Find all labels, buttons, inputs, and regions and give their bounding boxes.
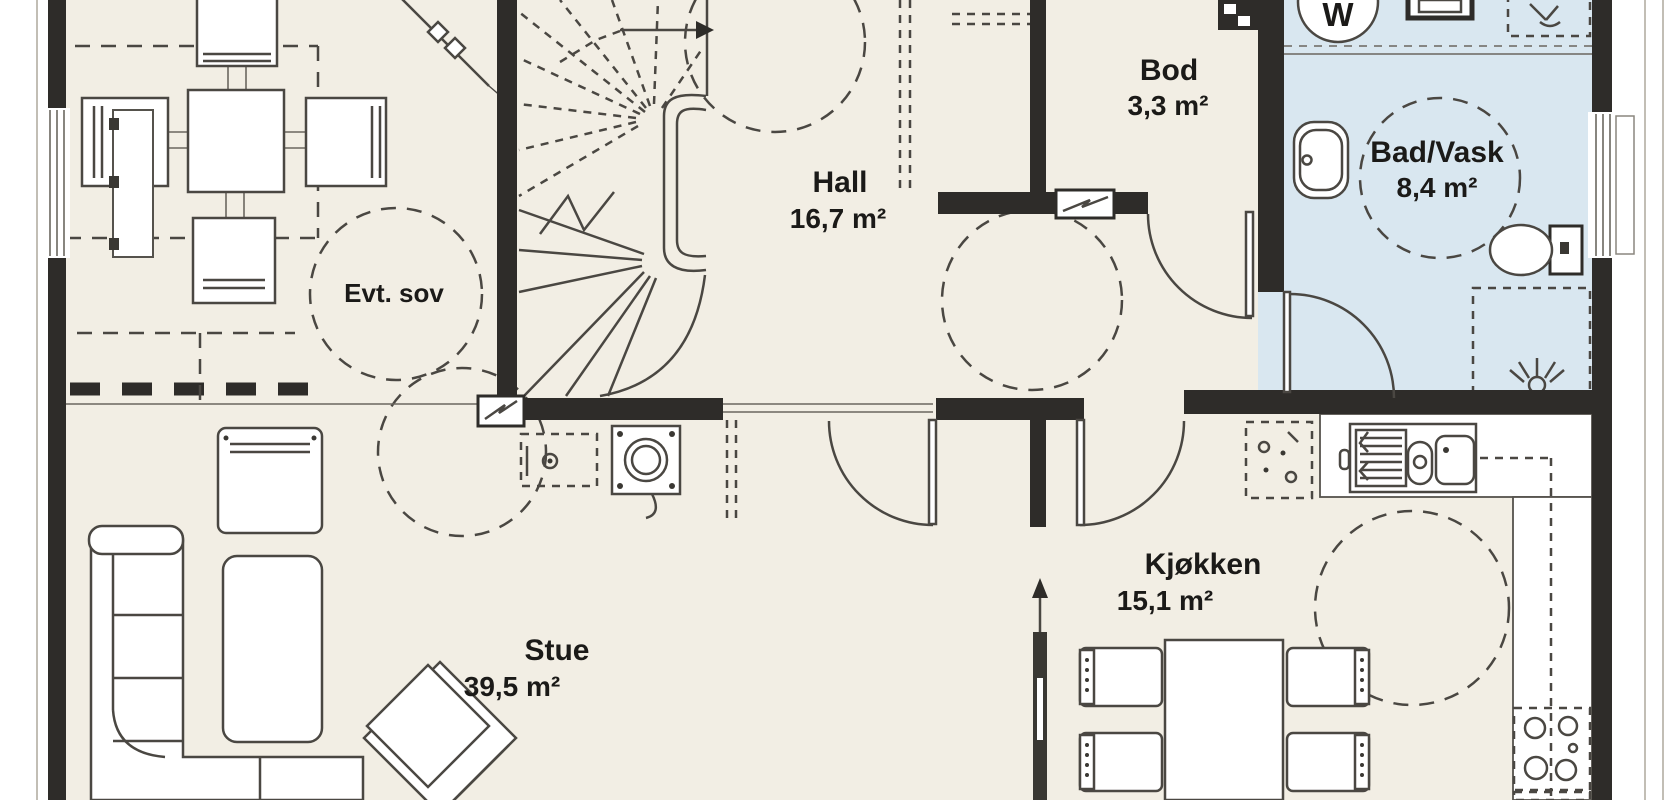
dining-table bbox=[188, 90, 284, 192]
label-kjokken: Kjøkken bbox=[1145, 548, 1262, 581]
dryer-icon bbox=[1408, 0, 1472, 18]
label-bad-vask-area: 8,4 m² bbox=[1397, 172, 1478, 203]
wall-hall-bottom bbox=[936, 398, 1084, 420]
label-kjokken-area: 15,1 m² bbox=[1117, 585, 1214, 616]
wall-left-top bbox=[48, 0, 66, 108]
label-bad-vask: Bad/Vask bbox=[1370, 136, 1504, 169]
label-stue: Stue bbox=[524, 634, 589, 667]
wall-bath-left bbox=[1258, 0, 1284, 292]
wall-stub bbox=[1030, 420, 1046, 527]
fusebox-bod bbox=[1056, 190, 1114, 218]
fusebox-stair bbox=[478, 396, 524, 426]
wall-left bbox=[48, 258, 66, 800]
chair-top bbox=[197, 0, 277, 66]
wall-bod-bottom bbox=[938, 192, 1148, 214]
label-evt-sov: Evt. sov bbox=[344, 278, 444, 308]
kitchen-table bbox=[1165, 640, 1283, 800]
sofa-arm bbox=[89, 526, 183, 554]
lounger bbox=[223, 556, 322, 742]
chair-bottom bbox=[193, 218, 275, 303]
wall-kitchen-top bbox=[1184, 390, 1592, 414]
label-hall: Hall bbox=[812, 166, 867, 199]
label-hall-area: 16,7 m² bbox=[790, 203, 887, 234]
floor-plan: W bbox=[0, 0, 1670, 800]
wall-right-top bbox=[1592, 0, 1612, 112]
window-right bbox=[1588, 112, 1634, 258]
wall-stair-left bbox=[497, 0, 517, 418]
chair-right bbox=[306, 98, 386, 186]
label-bod: Bod bbox=[1140, 54, 1198, 87]
bathroom-sink-icon bbox=[1294, 122, 1348, 198]
label-bod-area: 3,3 m² bbox=[1128, 90, 1209, 121]
washing-machine-label: W bbox=[1322, 0, 1354, 33]
floor-plan-drawing: W bbox=[0, 0, 1670, 800]
wall-bod-left bbox=[1030, 0, 1046, 214]
wall-right bbox=[1592, 258, 1612, 800]
wall-stue-hall bbox=[497, 398, 723, 420]
label-stue-area: 39,5 m² bbox=[464, 671, 561, 702]
toilet-icon bbox=[1490, 225, 1582, 275]
armchair bbox=[218, 428, 322, 533]
bath-door-threshold bbox=[1258, 292, 1284, 390]
